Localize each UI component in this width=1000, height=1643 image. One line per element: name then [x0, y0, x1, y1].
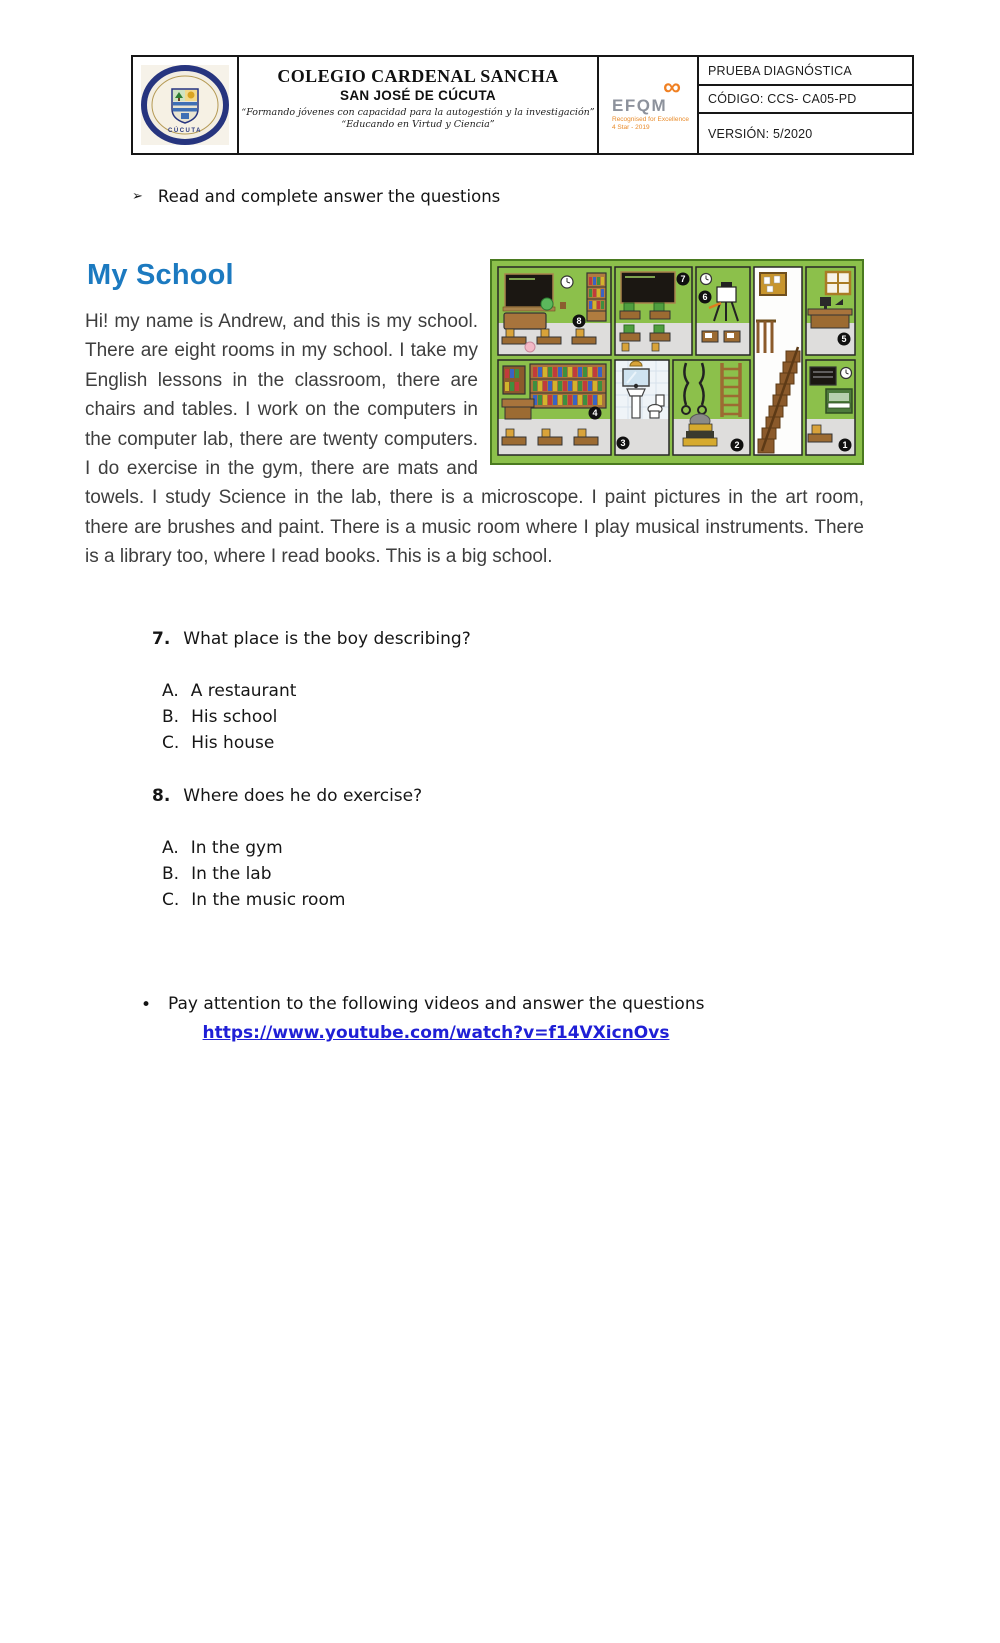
doc-info-row-code: CÓDIGO: CCS- CA05-PD [699, 86, 912, 114]
instruction-text: Read and complete answer the questions [158, 187, 500, 206]
option-label: C. [162, 887, 179, 913]
svg-text:5: 5 [841, 334, 846, 344]
stairwell [754, 267, 802, 455]
option-label: B. [162, 861, 179, 887]
option-label: B. [162, 704, 179, 730]
option-label: C. [162, 730, 179, 756]
room-bathroom-3: 3 [615, 360, 669, 455]
room-number-badge-7: 7 [677, 273, 690, 286]
school-city: SAN JOSÉ DE CÚCUTA [239, 88, 597, 103]
reading-section: 8 7 [85, 259, 864, 572]
question-7-number: 7. [152, 629, 170, 649]
option-text: His house [191, 730, 274, 756]
school-logo: COLEGIO CARDENAL SANCHA CÚCUTA [139, 63, 231, 147]
svg-text:4: 4 [592, 408, 597, 418]
option-label: A. [162, 835, 179, 861]
svg-text:COLEGIO CARDENAL SANCHA: COLEGIO CARDENAL SANCHA [139, 63, 231, 65]
question-8-text: Where does he do exercise? [183, 786, 422, 806]
room-library-4: 4 [498, 360, 611, 455]
option-text: In the lab [191, 861, 271, 887]
svg-text:8: 8 [576, 316, 581, 326]
question-7-option-a: A. A restaurant [162, 678, 471, 704]
svg-text:6: 6 [702, 292, 707, 302]
svg-text:2: 2 [734, 440, 739, 450]
room-number-badge-8: 8 [573, 315, 586, 328]
efqm-infinity-icon: ∞ [663, 78, 681, 96]
question-8-number: 8. [152, 786, 170, 806]
school-name: COLEGIO CARDENAL SANCHA [239, 66, 597, 87]
option-text: A restaurant [191, 678, 297, 704]
efqm-subtitle-2: 4 Star - 2019 [612, 124, 650, 132]
school-logo-cell: COLEGIO CARDENAL SANCHA CÚCUTA [133, 57, 239, 153]
efqm-label: EFQM [612, 96, 667, 116]
svg-text:7: 7 [680, 274, 685, 284]
dot-bullet-icon: • [141, 994, 151, 1016]
option-text: In the music room [191, 887, 345, 913]
question-7-text: What place is the boy describing? [183, 629, 470, 649]
question-8: 8. Where does he do exercise? A. In the … [152, 786, 422, 913]
video-section: • Pay attention to the following videos … [141, 994, 731, 1043]
option-label: A. [162, 678, 179, 704]
arrow-bullet-icon: ➢ [132, 187, 143, 206]
school-illustration: 8 7 [490, 259, 864, 465]
question-7-option-b: B. His school [162, 704, 471, 730]
efqm-logo-cell: ∞ EFQM Recognised for Excellence 4 Star … [599, 57, 699, 153]
svg-text:1: 1 [842, 440, 847, 450]
question-7: 7. What place is the boy describing? A. … [152, 629, 471, 756]
school-motto-1: “Formando jóvenes con capacidad para la … [239, 107, 597, 118]
school-name-cell: COLEGIO CARDENAL SANCHA SAN JOSÉ DE CÚCU… [239, 57, 599, 153]
question-7-option-c: C. His house [162, 730, 471, 756]
question-8-option-a: A. In the gym [162, 835, 422, 861]
youtube-link[interactable]: https://www.youtube.com/watch?v=f14VXicn… [203, 1023, 670, 1043]
efqm-subtitle-1: Recognised for Excellence [612, 116, 689, 124]
instruction-line: ➢ Read and complete answer the questions [132, 187, 500, 206]
room-number-badge-3: 3 [617, 437, 630, 450]
doc-info-row-test-name: PRUEBA DIAGNÓSTICA [699, 57, 912, 86]
room-number-badge-4: 4 [589, 407, 602, 420]
svg-text:3: 3 [620, 438, 625, 448]
room-number-badge-6: 6 [699, 291, 712, 304]
doc-info-row-version: VERSIÓN: 5/2020 [699, 114, 912, 153]
question-8-option-c: C. In the music room [162, 887, 422, 913]
room-number-badge-1: 1 [839, 439, 852, 452]
option-text: In the gym [191, 835, 283, 861]
option-text: His school [191, 704, 277, 730]
question-8-option-b: B. In the lab [162, 861, 422, 887]
school-motto-2: “Educando en Virtud y Ciencia” [239, 119, 597, 130]
video-instruction-text: Pay attention to the following videos an… [168, 994, 704, 1014]
document-info-cell: PRUEBA DIAGNÓSTICA CÓDIGO: CCS- CA05-PD … [699, 57, 912, 153]
svg-text:CÚCUTA: CÚCUTA [168, 127, 202, 134]
room-number-badge-2: 2 [731, 439, 744, 452]
header-table: COLEGIO CARDENAL SANCHA CÚCUTA COLEGIO C… [131, 55, 914, 155]
room-number-badge-5: 5 [838, 333, 851, 346]
